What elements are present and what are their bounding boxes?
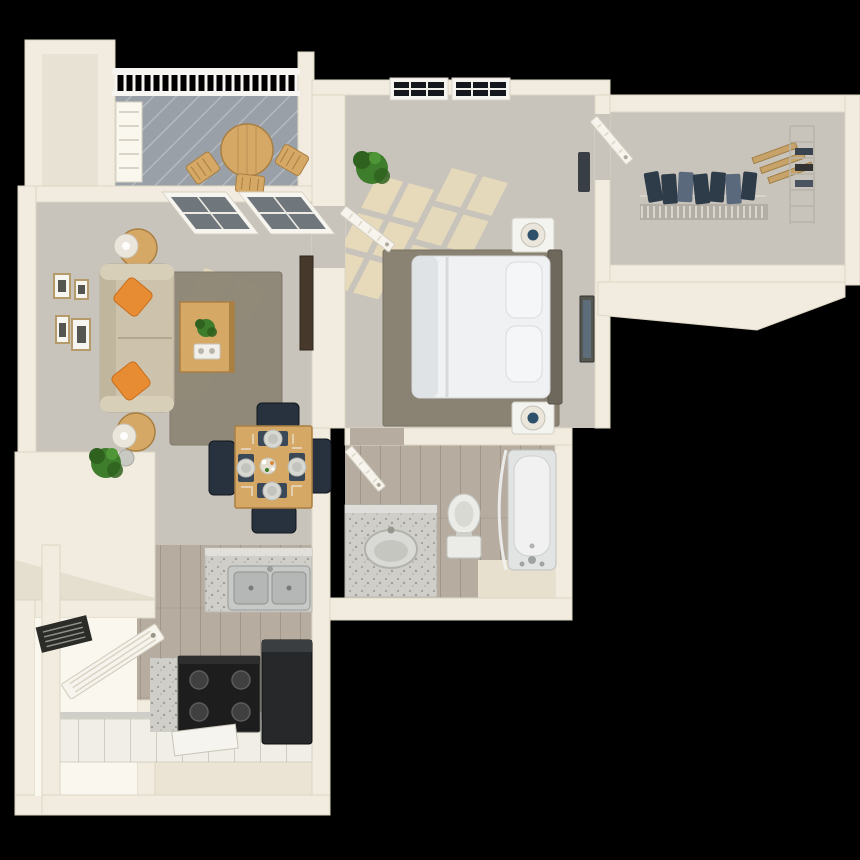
coffee-table <box>180 302 234 372</box>
floor-plan-stage <box>0 0 860 860</box>
sofa <box>100 264 174 412</box>
tv-console <box>300 256 313 350</box>
lamp-top <box>122 242 130 250</box>
plant-foliage <box>107 462 123 478</box>
wall-kitchen-left <box>42 545 60 798</box>
bathtub <box>499 450 556 570</box>
table-edge-shadow <box>229 302 234 372</box>
art-print <box>77 326 86 343</box>
granite-speckle <box>150 658 178 732</box>
wall-kitchen-bottom <box>42 795 330 815</box>
sink-faucet <box>388 527 395 534</box>
wall-utility-left <box>15 600 35 815</box>
wall-shading <box>42 54 98 186</box>
patio-sliding-door-panel <box>116 102 142 182</box>
art-print <box>583 300 591 358</box>
sofa-back <box>100 264 116 412</box>
wall-living-left <box>18 186 36 464</box>
burner <box>190 703 208 721</box>
wall-ac-unit <box>578 152 590 192</box>
garment <box>741 171 758 200</box>
burner <box>190 671 208 689</box>
plant-foliage <box>353 151 371 169</box>
tub-handle <box>540 562 545 567</box>
tub-basin <box>514 456 550 556</box>
table-tray <box>194 344 220 359</box>
garment <box>709 171 727 202</box>
plate-center <box>241 463 251 473</box>
bed-pillow <box>506 326 542 382</box>
garment <box>692 173 710 204</box>
duvet-foot-fold <box>412 256 438 398</box>
patio-table <box>221 124 273 176</box>
centerpiece-leaf <box>265 468 269 472</box>
plant-leaves <box>195 319 205 329</box>
dining-chair <box>257 403 299 429</box>
breakfast-counter <box>205 548 312 612</box>
coffee-table-top <box>180 302 234 372</box>
wall-closet-bottom <box>610 265 845 282</box>
plate-center <box>267 486 277 496</box>
lamp-top <box>120 432 128 440</box>
tray-item <box>198 348 204 354</box>
wall-bath-bottom <box>330 598 572 620</box>
patio-chair <box>235 174 265 195</box>
plate-center <box>268 434 278 444</box>
wall-closet-top <box>610 95 860 112</box>
tray-item <box>209 348 215 354</box>
doorway-bathroom <box>350 428 404 445</box>
plant-foliage <box>369 152 381 164</box>
bedroom-wall-art <box>580 296 594 362</box>
art-print <box>59 323 66 337</box>
railing-balusters <box>116 75 296 91</box>
garment <box>661 173 678 204</box>
railing-top-rail <box>112 68 300 75</box>
toilet <box>447 494 481 558</box>
art-print <box>78 285 85 294</box>
folded-clothes <box>795 148 813 155</box>
dining-chair <box>209 441 235 495</box>
art-print <box>58 280 66 292</box>
stove-control-strip <box>178 656 260 664</box>
plant-foliage <box>89 448 105 464</box>
wire-shelf-base <box>640 204 768 220</box>
bed-pillow <box>506 262 542 318</box>
folded-clothes <box>795 164 813 171</box>
centerpiece-flower <box>270 461 274 465</box>
toilet-tank <box>447 536 481 558</box>
burner <box>232 703 250 721</box>
plant-foliage <box>106 448 118 460</box>
sofa-armrest <box>100 264 174 280</box>
refrigerator <box>262 640 312 744</box>
toilet-hinge <box>456 532 472 536</box>
garment <box>725 174 742 205</box>
centerpiece-flower <box>271 467 275 471</box>
burner <box>232 671 250 689</box>
fridge-body <box>262 640 312 744</box>
wire-shelf-ticks <box>642 206 762 218</box>
tub-handle <box>520 562 525 567</box>
fridge-top <box>262 640 312 652</box>
railing-bottom-rail <box>112 91 300 96</box>
garment <box>677 172 694 203</box>
folded-clothes <box>795 180 813 187</box>
centerpiece-flower <box>262 460 267 465</box>
sliding-door-panel <box>116 102 142 182</box>
dining-chair <box>252 506 296 533</box>
lamp-center <box>528 230 539 241</box>
vanity <box>345 505 437 597</box>
sink-bowl <box>374 540 408 562</box>
lamp-center <box>528 413 539 424</box>
wall-utility-top <box>15 600 155 618</box>
toilet-seat <box>455 501 474 527</box>
sink-drain <box>287 586 292 591</box>
tub-faucet <box>528 556 536 564</box>
sink-faucet <box>267 566 273 572</box>
floor-plan-canvas <box>0 0 860 860</box>
sink-drain <box>249 586 254 591</box>
vanity-backsplash <box>345 505 437 513</box>
plant-foliage <box>374 168 390 184</box>
plate-center <box>292 462 302 472</box>
stove-cooktop <box>178 656 260 732</box>
plant-leaves <box>207 327 217 337</box>
wall-bath-right <box>555 445 572 620</box>
counter-highlight <box>205 548 312 556</box>
sofa-armrest <box>100 396 174 412</box>
tub-drain <box>530 544 535 549</box>
wall-closet-right <box>845 95 860 285</box>
